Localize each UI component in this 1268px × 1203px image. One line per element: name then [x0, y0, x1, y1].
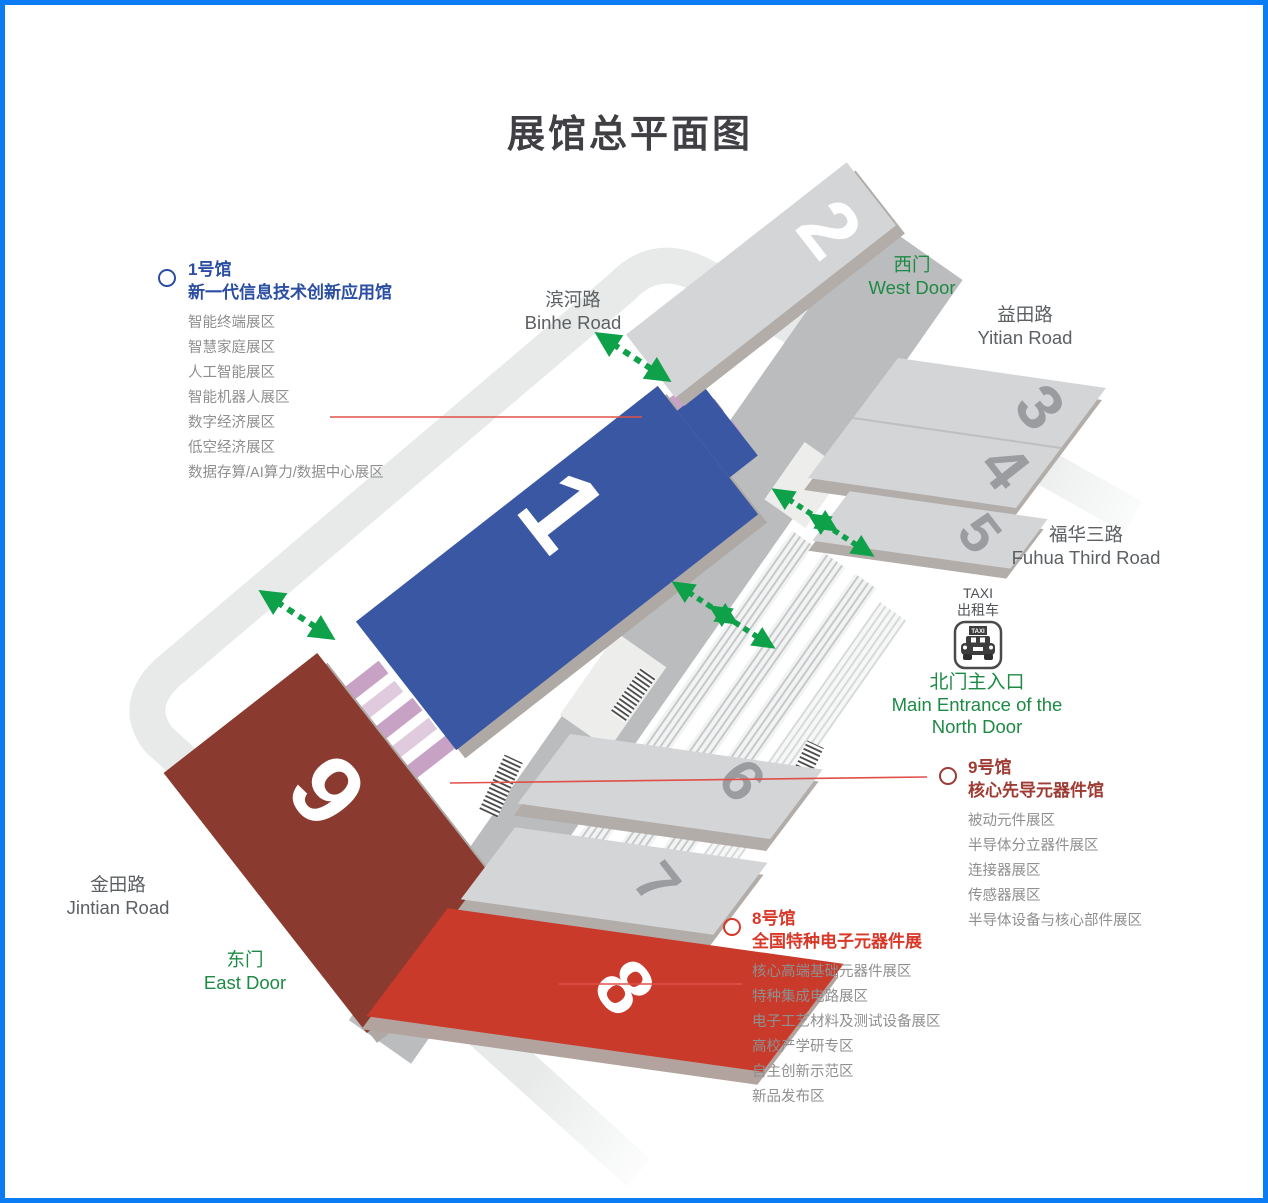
road-label-jintian: 金田路 Jintian Road [67, 873, 170, 919]
legend-hall8-items: 核心高端基础元器件展区 特种集成电路展区 电子工艺材料及测试设备展区 高校产学研… [752, 960, 941, 1110]
door-label-east: 东门 East Door [204, 948, 286, 994]
legend-hall1-no: 1号馆 [188, 258, 392, 281]
legend-hall8-name: 全国特种电子元器件展 [752, 930, 941, 953]
taxi-icon: TAXI [955, 622, 1001, 668]
legend-hall8-no: 8号馆 [752, 907, 941, 930]
door-label-west: 西门 West Door [868, 253, 955, 299]
legend-hall9-name: 核心先导元器件馆 [968, 779, 1142, 802]
north-entrance-label: 北门主入口 Main Entrance of the North Door [892, 671, 1063, 738]
legend-hall1-marker [158, 269, 176, 287]
road-label-binhe: 滨河路 Binhe Road [525, 288, 622, 334]
legend-hall1-items: 智能终端展区 智慧家庭展区 人工智能展区 智能机器人展区 数字经济展区 低空经济… [188, 311, 392, 486]
floorplan-page: 展馆总平面图 [0, 0, 1268, 1203]
road-fade-bottom [505, 1055, 735, 1203]
legend-hall8-marker [723, 918, 741, 936]
legend-hall1-name: 新一代信息技术创新应用馆 [188, 281, 392, 304]
venue-map: 9 1 2 3 4 5 [5, 5, 1268, 1203]
road-label-fuhua: 福华三路 Fuhua Third Road [1012, 523, 1161, 569]
road-label-yitian: 益田路 Yitian Road [978, 303, 1073, 349]
taxi-label: TAXI 出租车 [957, 585, 999, 619]
legend-hall9-marker [939, 767, 957, 785]
legend-hall9-items: 被动元件展区 半导体分立器件展区 连接器展区 传感器展区 半导体设备与核心部件展… [968, 809, 1142, 934]
legend-hall9-no: 9号馆 [968, 756, 1142, 779]
svg-text:TAXI: TAXI [971, 629, 985, 635]
